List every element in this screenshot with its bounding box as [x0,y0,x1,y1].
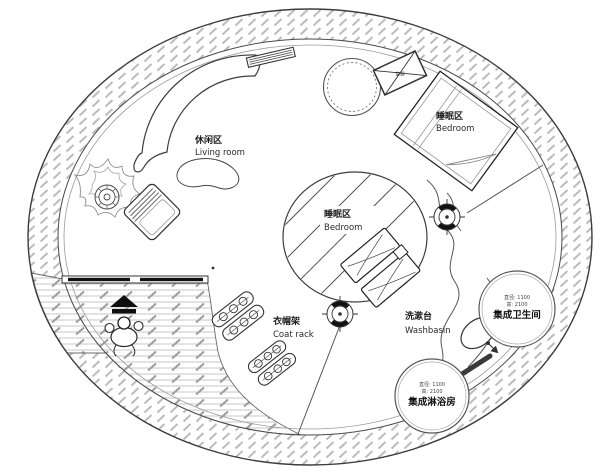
floor-plan-canvas: 空调 [0,0,611,473]
towel-bar [459,356,490,376]
washbasin-label-zh: 洗漱台 [405,310,432,322]
coat-rack-1 [210,289,266,342]
door-handle-dot [212,267,215,270]
kidney-table [177,159,239,189]
toilet-pod: 直径: 1100 高: 2100 集成卫生间 [479,271,555,347]
living-label-en: Living room [195,148,245,158]
coat-rack-label-en: Coat rack [273,330,314,340]
floor-plan-drawing: 空调 [0,0,611,473]
bedroom-center-label-en: Bedroom [324,223,362,233]
shower-pod-name: 集成淋浴房 [407,396,456,408]
shower-pod-spec1: 直径: 1100 [419,381,445,388]
faucet-arrow [489,344,498,353]
toilet-pod-spec1: 直径: 1100 [504,294,530,301]
coat-rack-label-zh: 衣帽架 [273,315,300,327]
armchair [122,182,181,241]
bedroom-center-label-zh: 睡眠区 [324,208,351,220]
shower-pod-spec2: 高: 2100 [422,388,443,395]
round-table [324,59,381,116]
shower-pod: 直径: 1100 高: 2100 集成淋浴房 [395,359,469,433]
toilet-pod-name: 集成卫生间 [492,309,541,321]
toilet-pod-spec2: 高: 2100 [507,301,528,308]
ac-unit: 空调 [373,51,426,95]
bedroom-upper-label-en: Bedroom [436,124,474,134]
bedroom-upper-label-zh: 睡眠区 [436,110,463,122]
washbasin-label-en: Washbasin [405,326,451,336]
living-label-zh: 休闲区 [194,134,222,146]
ac-label: 空调 [396,71,405,78]
coat-rack-2 [246,338,298,387]
deck-window-wall [62,267,214,283]
